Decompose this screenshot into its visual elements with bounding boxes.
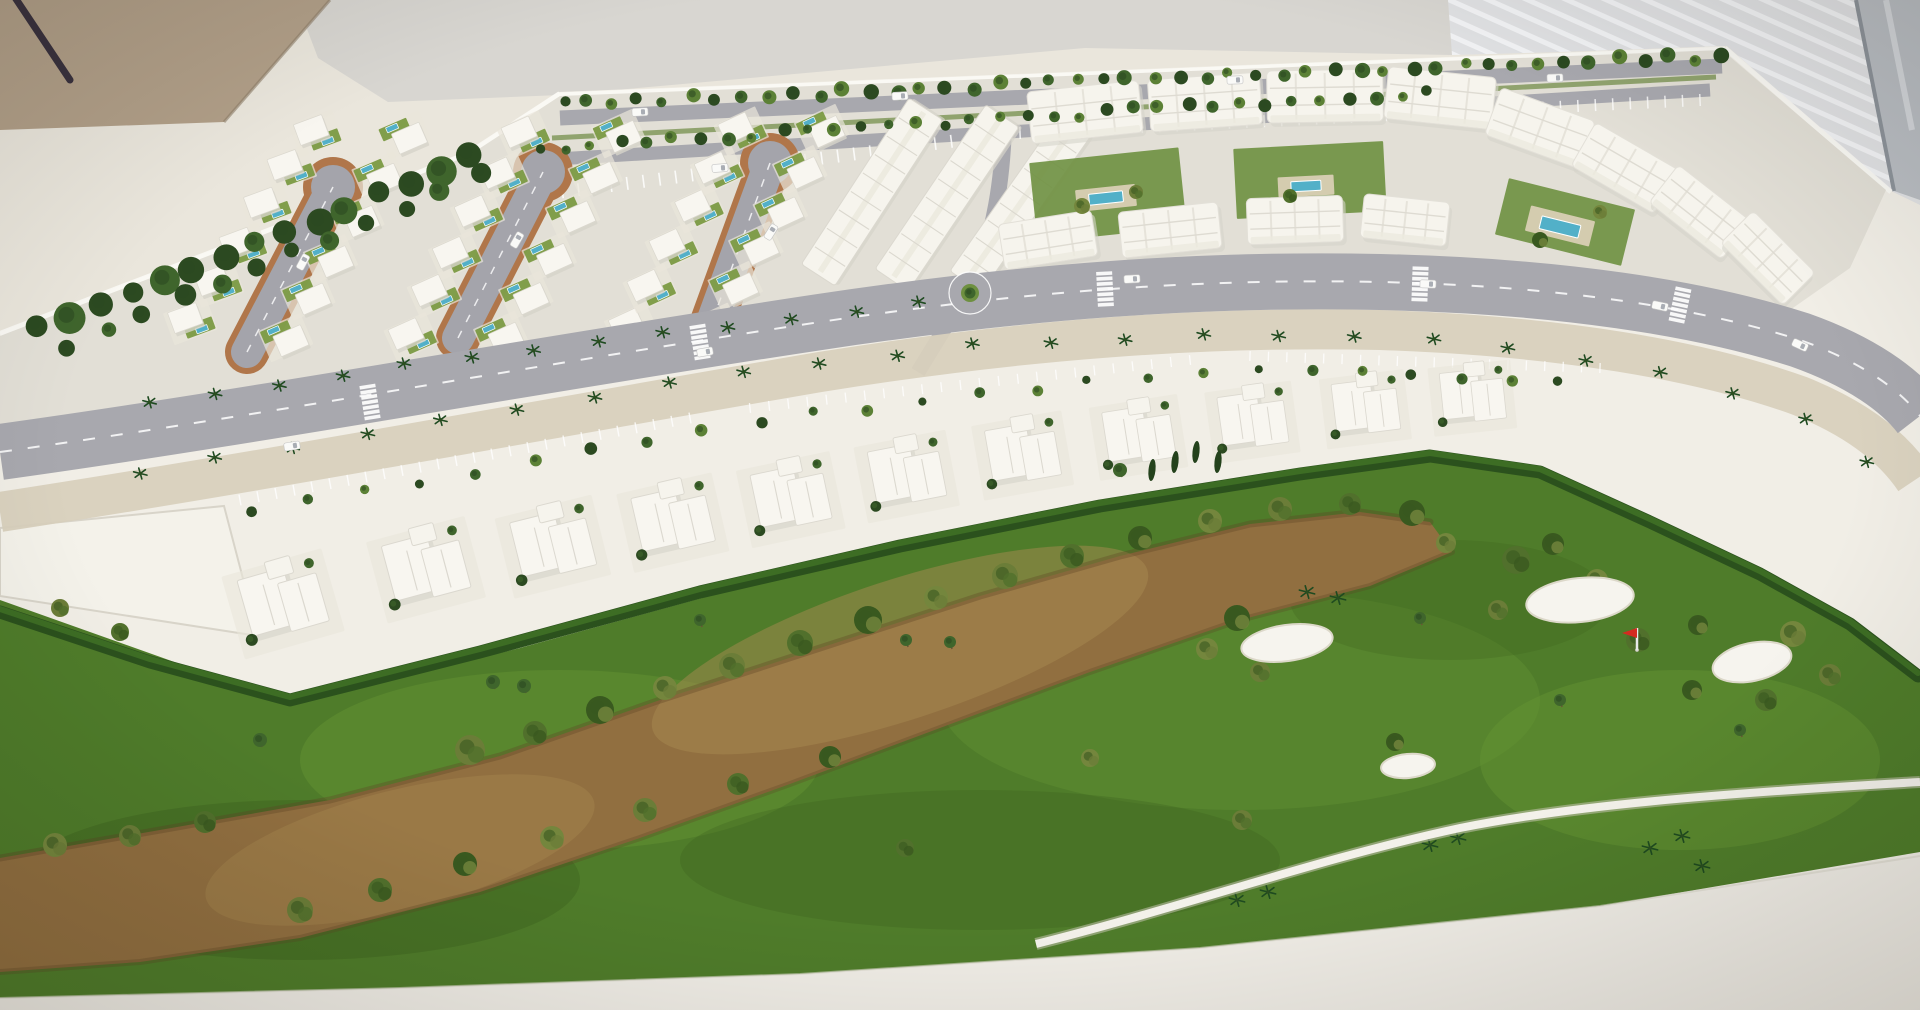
photo-vignette <box>0 0 1920 1010</box>
scene-canvas <box>0 0 1920 1010</box>
architectural-model-photo <box>0 0 1920 1010</box>
